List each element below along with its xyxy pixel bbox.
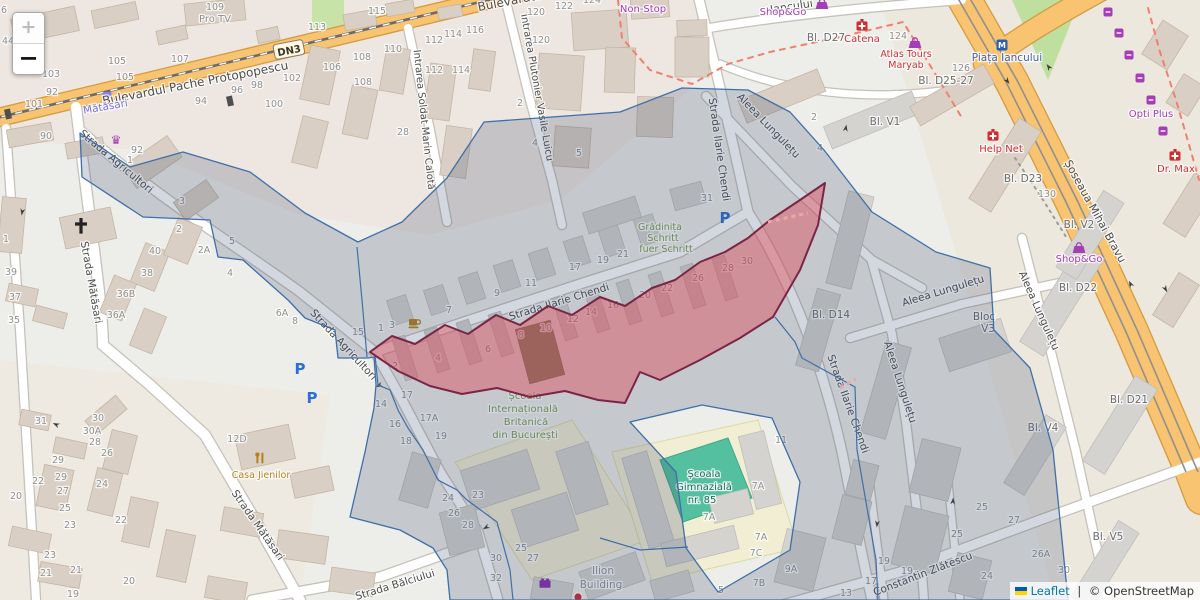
svg-text:P: P <box>295 360 306 378</box>
housenumber-label: 114 <box>452 65 470 76</box>
housenumber-label: 27 <box>57 486 69 497</box>
shop-generic-icon <box>1125 51 1134 60</box>
housenumber-label: 113 <box>308 22 326 33</box>
housenumber-label: 105 <box>116 72 134 83</box>
block-label: Bl. V5 <box>1093 531 1124 543</box>
osm-link[interactable]: © OpenStreetMap <box>1089 584 1194 598</box>
housenumber-label: 2 <box>811 112 817 123</box>
housenumber-label: 22 <box>115 515 127 526</box>
svg-text:P: P <box>307 389 318 407</box>
building <box>675 37 709 77</box>
housenumber-label: 124 <box>889 31 907 42</box>
poi-label: Pro TV <box>199 14 231 25</box>
ukraine-flag-icon <box>1015 587 1027 595</box>
housenumber-label: 28 <box>397 127 409 138</box>
poi-label: Help Net <box>979 144 1023 155</box>
housenumber-label: 115 <box>368 6 386 17</box>
leaflet-link[interactable]: Leaflet <box>1031 584 1070 598</box>
block-label: Bl. D21 <box>1110 394 1148 406</box>
shop-generic-icon <box>1136 74 1145 83</box>
housenumber-label: 4 <box>227 268 233 279</box>
housenumber-label: 29 <box>52 455 64 466</box>
attribution-separator: | <box>1074 584 1085 598</box>
housenumber-label: 8 <box>292 316 298 327</box>
housenumber-label: 20 <box>10 491 22 502</box>
housenumber-label: 2 <box>176 224 182 235</box>
block-label: Bl. D25-27 <box>918 75 973 87</box>
school-label: nr. 85 <box>688 495 717 506</box>
housenumber-label: 130 <box>1038 189 1056 200</box>
poi-label: Maryab <box>888 60 923 71</box>
housenumber-label: 96 <box>231 85 243 96</box>
school-label: Gimnazială <box>676 482 732 493</box>
station-label: Piața Iancului <box>972 52 1042 64</box>
poi-label: Casa Jienilor <box>232 470 291 481</box>
housenumber-label: 114 <box>444 29 462 40</box>
housenumber-label: 21 <box>40 568 52 579</box>
housenumber-label: 120 <box>527 7 545 18</box>
housenumber-label: 6A <box>276 308 289 319</box>
housenumber-label: 36B <box>117 289 136 300</box>
block-label: Bl. D27 <box>807 32 845 44</box>
housenumber-label: 100 <box>265 99 283 110</box>
housenumber-label: 110 <box>384 44 402 55</box>
block-label: Bl. V1 <box>870 116 901 128</box>
block-label: Bl. D23 <box>1004 173 1042 185</box>
housenumber-label: 102 <box>283 73 301 84</box>
housenumber-label: 2A <box>198 245 211 256</box>
poi-label: Dr. Max <box>1157 164 1195 175</box>
poi-label: Atlas Tours <box>880 49 931 60</box>
housenumber-label: 109 <box>206 2 224 13</box>
zoom-control: + − <box>12 12 45 75</box>
housenumber-label: 24 <box>96 479 108 490</box>
housenumber-label: 94 <box>195 96 207 107</box>
housenumber-label: 1 <box>127 155 133 166</box>
building <box>677 19 708 36</box>
metro-icon: M <box>997 40 1008 51</box>
housenumber-label: 26 <box>101 448 113 459</box>
housenumber-label: 28 <box>89 437 101 448</box>
crown-shop-icon: ♛ <box>111 133 122 147</box>
housenumber-label: 7A <box>755 532 768 543</box>
housenumber-label: 107 <box>171 54 189 65</box>
map-canvas[interactable]: DN3♛PPPMBulevardul Pache ProtopopescuBul… <box>0 0 1200 600</box>
poi-label: Opti Plus <box>1129 109 1173 120</box>
shop-generic-icon <box>1147 96 1156 105</box>
map-viewport[interactable]: DN3♛PPPMBulevardul Pache ProtopopescuBul… <box>0 0 1200 600</box>
housenumber-label: 21 <box>70 565 82 576</box>
zoom-in-button[interactable]: + <box>13 13 44 44</box>
housenumber-label: 12D <box>227 434 246 445</box>
shop-generic-icon <box>1104 8 1113 17</box>
building <box>604 47 636 93</box>
housenumber-label: 25 <box>59 503 71 514</box>
block-label: Bl. D22 <box>1059 282 1097 294</box>
housenumber-label: 98 <box>251 80 263 91</box>
housenumber-label: 30A <box>83 426 102 437</box>
housenumber-label: 122 <box>555 1 573 12</box>
housenumber-label: 35 <box>8 315 20 326</box>
housenumber-label: 37 <box>9 292 21 303</box>
housenumber-label: 39 <box>5 267 17 278</box>
block-label: Bl. V2 <box>1064 219 1095 231</box>
poi-label: Catena <box>844 34 880 45</box>
housenumber-label: 40 <box>149 246 161 257</box>
housenumber-label: 92 <box>46 87 58 98</box>
svg-text:♛: ♛ <box>111 133 122 147</box>
housenumber-label: 124 <box>583 0 601 6</box>
housenumber-label: 36A <box>107 310 126 321</box>
poi-label: Non-Stop <box>620 4 666 15</box>
housenumber-label: 112 <box>425 35 443 46</box>
housenumber-label: 6 <box>1 5 7 16</box>
parking-icon: P <box>295 360 306 378</box>
housenumber-label: 90 <box>40 131 52 142</box>
svg-text:M: M <box>998 41 1006 50</box>
shop-generic-icon <box>1115 29 1124 38</box>
housenumber-label: 30 <box>92 413 104 424</box>
school-label: Școala <box>688 469 721 480</box>
shop-generic-icon <box>1159 127 1168 136</box>
housenumber-label: 1 <box>3 234 9 245</box>
housenumber-label: 105 <box>108 56 126 67</box>
housenumber-label: 112 <box>425 65 443 76</box>
parking-icon: P <box>307 389 318 407</box>
housenumber-label: 108 <box>354 77 372 88</box>
housenumber-label: 22 <box>32 476 44 487</box>
housenumber-label: 23 <box>64 520 76 531</box>
zoom-out-button[interactable]: − <box>13 44 44 74</box>
housenumber-label: 38 <box>141 268 153 279</box>
housenumber-label: 120 <box>532 35 550 46</box>
housenumber-label: 101 <box>25 99 43 110</box>
housenumber-label: 31 <box>35 416 47 427</box>
housenumber-label: 7C <box>750 548 763 559</box>
housenumber-label: 7A <box>752 481 765 492</box>
housenumber-label: 2 <box>517 98 523 109</box>
housenumber-label: 106 <box>323 62 341 73</box>
housenumber-label: 29 <box>55 472 67 483</box>
poi-label: Shop&Go <box>1056 254 1103 265</box>
housenumber-label: 19 <box>67 589 79 600</box>
poi-label: Shop&Go <box>760 7 807 18</box>
housenumber-label: 116 <box>466 25 484 36</box>
housenumber-label: 108 <box>353 52 371 63</box>
housenumber-label: 23 <box>44 550 56 561</box>
attribution-bar: Leaflet | © OpenStreetMap <box>1010 582 1200 600</box>
housenumber-label: 126 <box>952 63 970 74</box>
housenumber-label: 7A <box>703 512 716 523</box>
housenumber-label: 20 <box>123 576 135 587</box>
